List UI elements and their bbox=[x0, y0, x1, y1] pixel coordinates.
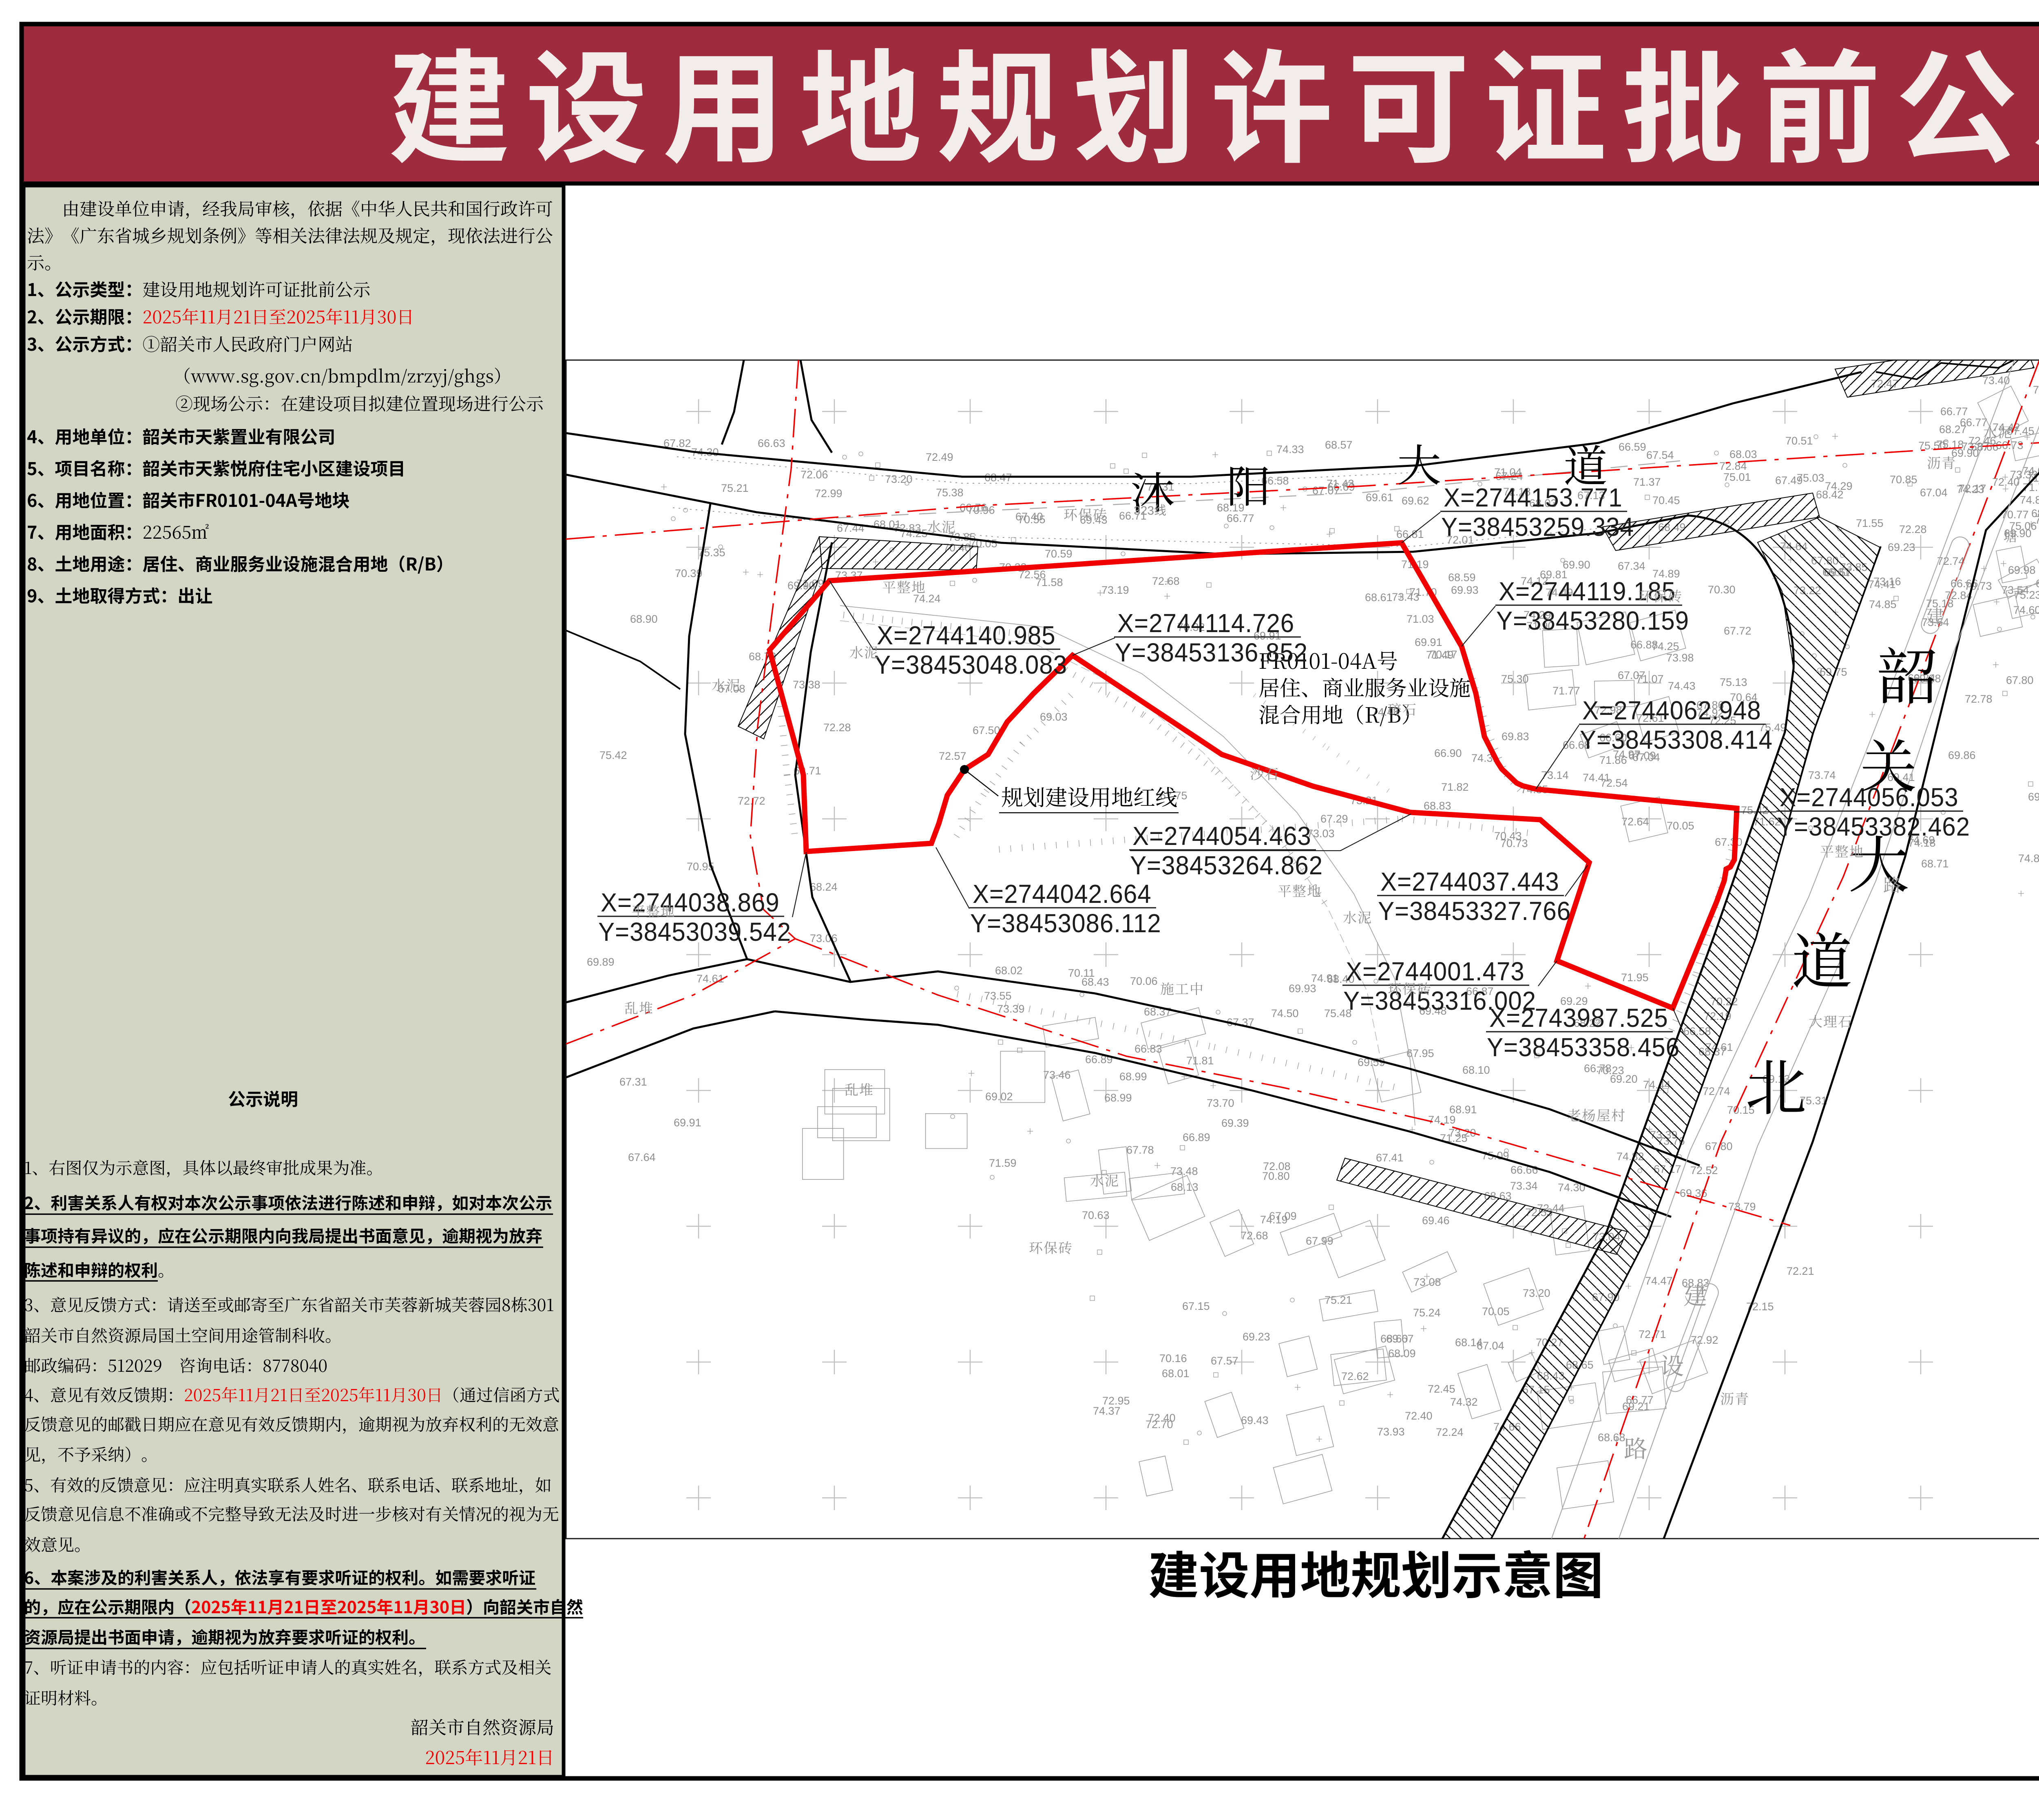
svg-text:323线: 323线 bbox=[1134, 504, 1166, 517]
svg-text:Y=38453259.334: Y=38453259.334 bbox=[1441, 513, 1634, 542]
svg-text:68.61: 68.61 bbox=[1365, 591, 1393, 604]
svg-text:70.43: 70.43 bbox=[1494, 830, 1522, 842]
svg-text:69.43: 69.43 bbox=[1241, 1414, 1269, 1426]
svg-text:72.72: 72.72 bbox=[738, 795, 765, 807]
svg-text:75.24: 75.24 bbox=[1413, 1307, 1441, 1319]
svg-text:74.24: 74.24 bbox=[913, 593, 941, 605]
svg-text:73.93: 73.93 bbox=[1377, 1426, 1405, 1438]
svg-text:X=2744062.948: X=2744062.948 bbox=[1582, 696, 1761, 725]
svg-text:69.71: 69.71 bbox=[794, 765, 821, 777]
svg-text:69.39: 69.39 bbox=[1221, 1117, 1249, 1129]
svg-text:72.57: 72.57 bbox=[939, 750, 966, 762]
svg-text:69.23: 69.23 bbox=[1243, 1331, 1270, 1343]
svg-text:70.63: 70.63 bbox=[1082, 1209, 1110, 1221]
svg-text:X=2744037.443: X=2744037.443 bbox=[1380, 867, 1559, 896]
svg-text:67.72: 67.72 bbox=[1724, 625, 1752, 637]
svg-text:66.59: 66.59 bbox=[1619, 441, 1646, 453]
svg-text:75.21: 75.21 bbox=[1325, 1294, 1352, 1306]
svg-text:68.99: 68.99 bbox=[1119, 1070, 1147, 1083]
svg-text:73.50: 73.50 bbox=[2033, 384, 2039, 396]
svg-text:69.02: 69.02 bbox=[985, 1090, 1013, 1103]
svg-text:72.62: 72.62 bbox=[1341, 1370, 1369, 1382]
svg-text:71.77: 71.77 bbox=[1552, 685, 1580, 697]
svg-text:74.61: 74.61 bbox=[697, 973, 724, 985]
svg-text:71.55: 71.55 bbox=[1856, 517, 1884, 529]
svg-text:69.46: 69.46 bbox=[1422, 1214, 1450, 1227]
svg-text:Y=38453048.083: Y=38453048.083 bbox=[874, 650, 1067, 679]
svg-text:71.49: 71.49 bbox=[1426, 649, 1454, 661]
svg-text:X=2744140.985: X=2744140.985 bbox=[877, 621, 1056, 650]
svg-text:67.41: 67.41 bbox=[1376, 1152, 1404, 1164]
svg-text:67.64: 67.64 bbox=[628, 1151, 656, 1163]
svg-text:68.01: 68.01 bbox=[1162, 1367, 1190, 1380]
svg-text:70.05: 70.05 bbox=[1482, 1305, 1510, 1318]
svg-text:70.51: 70.51 bbox=[1785, 435, 1813, 447]
svg-text:69.03: 69.03 bbox=[1040, 711, 1068, 723]
svg-text:74.19: 74.19 bbox=[1260, 1214, 1288, 1226]
svg-text:X=2744038.869: X=2744038.869 bbox=[601, 888, 780, 917]
svg-text:71.82: 71.82 bbox=[1441, 781, 1469, 793]
svg-text:74.33: 74.33 bbox=[1276, 443, 1304, 456]
svg-text:72.74: 72.74 bbox=[1937, 555, 1965, 567]
svg-text:72.28: 72.28 bbox=[1899, 523, 1927, 535]
svg-text:69.90: 69.90 bbox=[2004, 527, 2032, 540]
svg-text:73.34: 73.34 bbox=[1510, 1180, 1538, 1192]
svg-text:74.43: 74.43 bbox=[1668, 680, 1696, 692]
svg-text:72.06: 72.06 bbox=[801, 469, 828, 481]
svg-text:67.50: 67.50 bbox=[973, 724, 1000, 736]
svg-text:73.70: 73.70 bbox=[1207, 1097, 1234, 1109]
svg-text:70.05: 70.05 bbox=[1667, 820, 1694, 832]
svg-text:72.40: 72.40 bbox=[1405, 1410, 1433, 1422]
svg-text:72.74: 72.74 bbox=[1703, 1085, 1730, 1097]
svg-text:Y=38453327.766: Y=38453327.766 bbox=[1378, 897, 1571, 926]
svg-text:Y=38453264.862: Y=38453264.862 bbox=[1130, 851, 1323, 880]
svg-text:Y=38453136.852: Y=38453136.852 bbox=[1115, 638, 1308, 667]
svg-text:69.86: 69.86 bbox=[1948, 749, 1976, 761]
svg-text:67.45: 67.45 bbox=[2007, 425, 2035, 437]
svg-text:Y=38453039.542: Y=38453039.542 bbox=[598, 918, 791, 946]
svg-text:68.83: 68.83 bbox=[1424, 800, 1451, 812]
svg-text:66.81: 66.81 bbox=[1396, 528, 1424, 540]
svg-text:69.93: 69.93 bbox=[1289, 982, 1316, 995]
svg-text:73.74: 73.74 bbox=[1808, 769, 1836, 781]
svg-text:71.37: 71.37 bbox=[1633, 476, 1661, 488]
svg-text:66.77: 66.77 bbox=[1960, 416, 1988, 429]
svg-text:72.52: 72.52 bbox=[1690, 1164, 1718, 1176]
svg-text:72.21: 72.21 bbox=[1787, 1265, 1814, 1277]
svg-text:73.98: 73.98 bbox=[1666, 652, 1694, 664]
svg-text:74.29: 74.29 bbox=[1825, 480, 1853, 492]
svg-text:70.06: 70.06 bbox=[1130, 975, 1158, 987]
svg-text:72.99: 72.99 bbox=[815, 487, 843, 500]
svg-text:71.81: 71.81 bbox=[1186, 1055, 1214, 1067]
svg-text:70.59: 70.59 bbox=[1045, 548, 1073, 560]
svg-text:75.38: 75.38 bbox=[936, 487, 964, 499]
svg-text:67.78: 67.78 bbox=[1126, 1144, 1154, 1156]
svg-text:71.95: 71.95 bbox=[1621, 971, 1649, 984]
svg-text:66.89: 66.89 bbox=[1183, 1131, 1210, 1143]
svg-text:73.40: 73.40 bbox=[1982, 374, 2010, 387]
svg-text:69.83: 69.83 bbox=[1502, 730, 1529, 743]
svg-text:73.20: 73.20 bbox=[885, 473, 913, 485]
svg-text:72.45: 72.45 bbox=[1428, 1383, 1455, 1395]
svg-text:69.52: 69.52 bbox=[2028, 791, 2039, 803]
svg-text:70.73: 70.73 bbox=[1964, 580, 1992, 592]
svg-text:68.71: 68.71 bbox=[1921, 858, 1949, 870]
svg-text:72.68: 72.68 bbox=[1152, 575, 1180, 587]
svg-text:67.34: 67.34 bbox=[1618, 560, 1645, 572]
svg-text:67.29: 67.29 bbox=[1320, 813, 1348, 825]
svg-text:75.42: 75.42 bbox=[599, 749, 627, 761]
svg-text:68.10: 68.10 bbox=[1462, 1064, 1490, 1076]
svg-text:X=2744119.185: X=2744119.185 bbox=[1499, 577, 1676, 606]
svg-text:72.78: 72.78 bbox=[1965, 693, 1993, 705]
svg-text:73.48: 73.48 bbox=[1170, 1165, 1198, 1177]
svg-text:67.04: 67.04 bbox=[1920, 487, 1948, 499]
svg-text:X=2744153.771: X=2744153.771 bbox=[1444, 483, 1623, 512]
svg-text:X=2743987.525: X=2743987.525 bbox=[1489, 1004, 1668, 1033]
svg-text:69.93: 69.93 bbox=[1451, 584, 1479, 596]
svg-text:71.00: 71.00 bbox=[2035, 514, 2039, 526]
svg-text:73.19: 73.19 bbox=[1101, 584, 1129, 596]
svg-text:67.30: 67.30 bbox=[1715, 836, 1743, 848]
svg-text:75.31: 75.31 bbox=[1800, 1095, 1827, 1107]
svg-text:73.08: 73.08 bbox=[1413, 1276, 1441, 1288]
svg-text:67.54: 67.54 bbox=[1646, 449, 1674, 461]
svg-text:74.50: 74.50 bbox=[1271, 1007, 1299, 1019]
svg-text:66.77: 66.77 bbox=[1940, 405, 1968, 418]
svg-text:72.40: 72.40 bbox=[1992, 476, 2020, 488]
svg-text:72.95: 72.95 bbox=[1102, 1395, 1130, 1407]
svg-text:67.07: 67.07 bbox=[1618, 669, 1645, 681]
svg-text:66.90: 66.90 bbox=[1434, 747, 1462, 759]
svg-text:66.78: 66.78 bbox=[1584, 1062, 1612, 1075]
svg-text:72.68: 72.68 bbox=[1241, 1230, 1268, 1242]
svg-text:74.85: 74.85 bbox=[1869, 598, 1897, 610]
svg-text:68.59: 68.59 bbox=[1448, 571, 1476, 584]
svg-text:71.59: 71.59 bbox=[989, 1157, 1017, 1169]
svg-text:72.28: 72.28 bbox=[823, 721, 851, 734]
svg-text:75.13: 75.13 bbox=[1720, 676, 1747, 688]
svg-text:70.45: 70.45 bbox=[1652, 494, 1680, 506]
svg-text:68.57: 68.57 bbox=[1325, 439, 1353, 451]
svg-text:67.40: 67.40 bbox=[1015, 511, 1043, 523]
svg-text:74.60: 74.60 bbox=[2013, 604, 2039, 616]
svg-text:66.63: 66.63 bbox=[758, 437, 785, 449]
svg-text:74.81: 74.81 bbox=[2018, 852, 2039, 865]
svg-text:73.46: 73.46 bbox=[1043, 1069, 1071, 1081]
svg-text:68.24: 68.24 bbox=[810, 881, 838, 893]
svg-text:75.03: 75.03 bbox=[1797, 472, 1824, 484]
svg-text:67.95: 67.95 bbox=[1407, 1047, 1434, 1059]
svg-text:70.80: 70.80 bbox=[1262, 1170, 1290, 1182]
svg-text:69.90: 69.90 bbox=[1563, 559, 1590, 571]
svg-text:68.99: 68.99 bbox=[1104, 1092, 1132, 1104]
svg-text:Y=38453308.414: Y=38453308.414 bbox=[1580, 725, 1773, 754]
svg-text:67.31: 67.31 bbox=[619, 1076, 647, 1088]
svg-text:70.30: 70.30 bbox=[1708, 584, 1736, 596]
svg-text:X=2744114.726: X=2744114.726 bbox=[1117, 609, 1294, 638]
svg-text:68.60: 68.60 bbox=[1380, 1333, 1408, 1345]
svg-text:66.77: 66.77 bbox=[1626, 1394, 1654, 1406]
svg-text:66.77: 66.77 bbox=[1227, 512, 1254, 524]
svg-text:69.62: 69.62 bbox=[1402, 495, 1429, 507]
svg-text:68.02: 68.02 bbox=[995, 964, 1023, 977]
svg-text:69.91: 69.91 bbox=[1415, 636, 1442, 648]
svg-text:68.91: 68.91 bbox=[1449, 1103, 1477, 1116]
svg-text:Y=38453280.159: Y=38453280.159 bbox=[1496, 606, 1689, 635]
svg-text:71.03: 71.03 bbox=[1407, 613, 1434, 625]
svg-text:69.23: 69.23 bbox=[1888, 541, 1915, 553]
svg-text:73.39: 73.39 bbox=[997, 1003, 1025, 1015]
svg-text:X=2744042.664: X=2744042.664 bbox=[973, 880, 1152, 909]
svg-text:68.90: 68.90 bbox=[630, 613, 658, 625]
svg-text:69.98: 69.98 bbox=[2008, 564, 2036, 576]
svg-text:Y=38453382.462: Y=38453382.462 bbox=[1777, 812, 1970, 841]
svg-text:69.91: 69.91 bbox=[674, 1117, 701, 1129]
svg-text:72.40: 72.40 bbox=[1148, 1412, 1176, 1424]
svg-text:70.85: 70.85 bbox=[1890, 473, 1917, 486]
svg-text:67.80: 67.80 bbox=[2006, 674, 2034, 686]
svg-text:68.09: 68.09 bbox=[1388, 1347, 1416, 1360]
svg-text:72.24: 72.24 bbox=[1436, 1426, 1464, 1438]
svg-text:71.58: 71.58 bbox=[1035, 576, 1063, 588]
svg-text:72.49: 72.49 bbox=[926, 451, 953, 463]
svg-text:Y=38453086.112: Y=38453086.112 bbox=[970, 909, 1161, 938]
svg-text:68.43: 68.43 bbox=[1081, 976, 1109, 988]
svg-text:74.82: 74.82 bbox=[2020, 494, 2039, 506]
svg-text:67.57: 67.57 bbox=[1211, 1355, 1238, 1367]
svg-text:Y=38453358.456: Y=38453358.456 bbox=[1487, 1033, 1680, 1062]
svg-text:75.21: 75.21 bbox=[721, 482, 749, 494]
svg-text:67.15: 67.15 bbox=[1182, 1300, 1210, 1312]
svg-text:68.03: 68.03 bbox=[1729, 448, 1757, 460]
svg-text:72.17: 72.17 bbox=[1959, 482, 1986, 495]
svg-text:X=2744001.473: X=2744001.473 bbox=[1346, 957, 1525, 986]
svg-text:75.01: 75.01 bbox=[1723, 471, 1751, 483]
svg-text:73.55: 73.55 bbox=[984, 990, 1012, 1002]
svg-text:74.32: 74.32 bbox=[1450, 1396, 1478, 1408]
svg-text:70.16: 70.16 bbox=[1159, 1352, 1187, 1364]
svg-text:X=2744054.463: X=2744054.463 bbox=[1132, 822, 1311, 851]
svg-text:69.61: 69.61 bbox=[1366, 491, 1393, 504]
svg-text:68.14: 68.14 bbox=[1455, 1336, 1483, 1349]
svg-text:74.41: 74.41 bbox=[1583, 772, 1610, 784]
svg-text:69.89: 69.89 bbox=[587, 956, 615, 968]
svg-text:74.47: 74.47 bbox=[1645, 1275, 1673, 1287]
svg-text:74.41: 74.41 bbox=[1868, 578, 1896, 590]
